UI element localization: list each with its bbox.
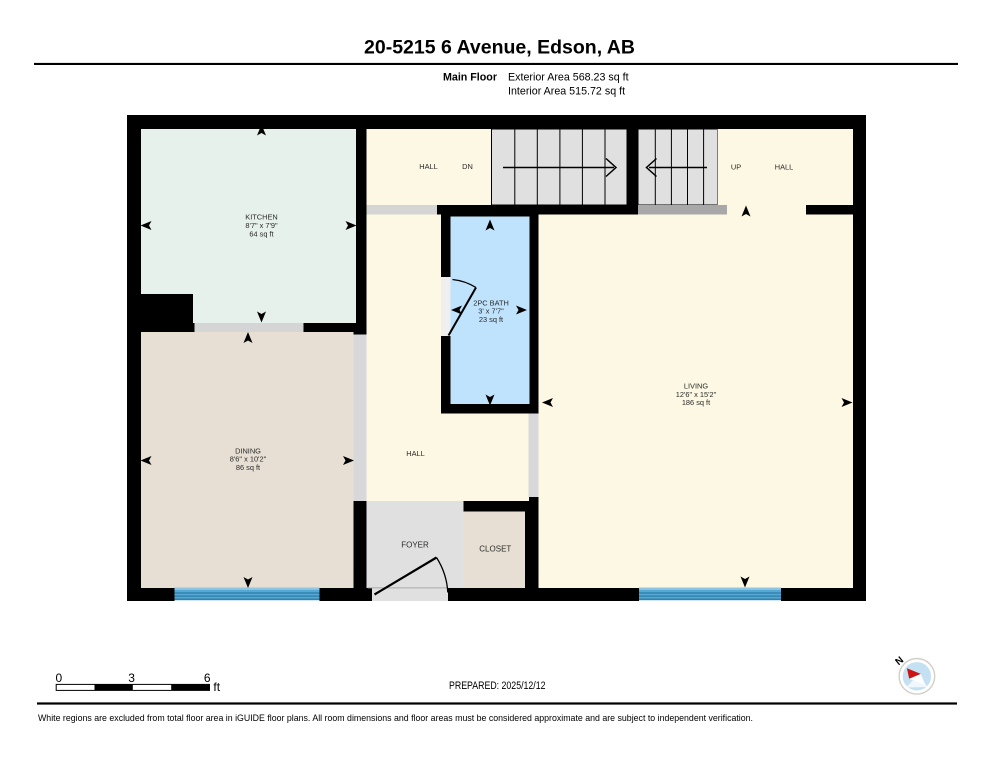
svg-text:ft: ft xyxy=(213,680,220,694)
svg-text:3: 3 xyxy=(128,671,135,685)
svg-text:186 sq ft: 186 sq ft xyxy=(682,398,710,407)
svg-text:CLOSET: CLOSET xyxy=(479,545,511,554)
svg-text:HALL: HALL xyxy=(406,449,425,458)
svg-text:UP: UP xyxy=(731,163,741,172)
svg-text:6: 6 xyxy=(204,671,211,685)
svg-text:20-5215 6 Avenue, Edson, AB: 20-5215 6 Avenue, Edson, AB xyxy=(364,37,635,59)
svg-text:FOYER: FOYER xyxy=(401,541,429,550)
svg-text:Interior Area 515.72 sq ft: Interior Area 515.72 sq ft xyxy=(508,86,625,98)
svg-text:0: 0 xyxy=(55,671,62,685)
svg-text:HALL: HALL xyxy=(775,163,794,172)
svg-text:86 sq ft: 86 sq ft xyxy=(236,463,260,472)
svg-text:PREPARED: 2025/12/12: PREPARED: 2025/12/12 xyxy=(449,680,546,692)
svg-text:Main Floor: Main Floor xyxy=(443,72,497,84)
svg-text:White regions are excluded fro: White regions are excluded from total fl… xyxy=(38,713,753,724)
svg-text:DN: DN xyxy=(462,162,473,171)
svg-text:Exterior Area 568.23 sq ft: Exterior Area 568.23 sq ft xyxy=(508,72,629,84)
svg-text:HALL: HALL xyxy=(419,162,438,171)
svg-text:64 sq ft: 64 sq ft xyxy=(249,229,273,238)
svg-text:23 sq ft: 23 sq ft xyxy=(479,315,503,324)
